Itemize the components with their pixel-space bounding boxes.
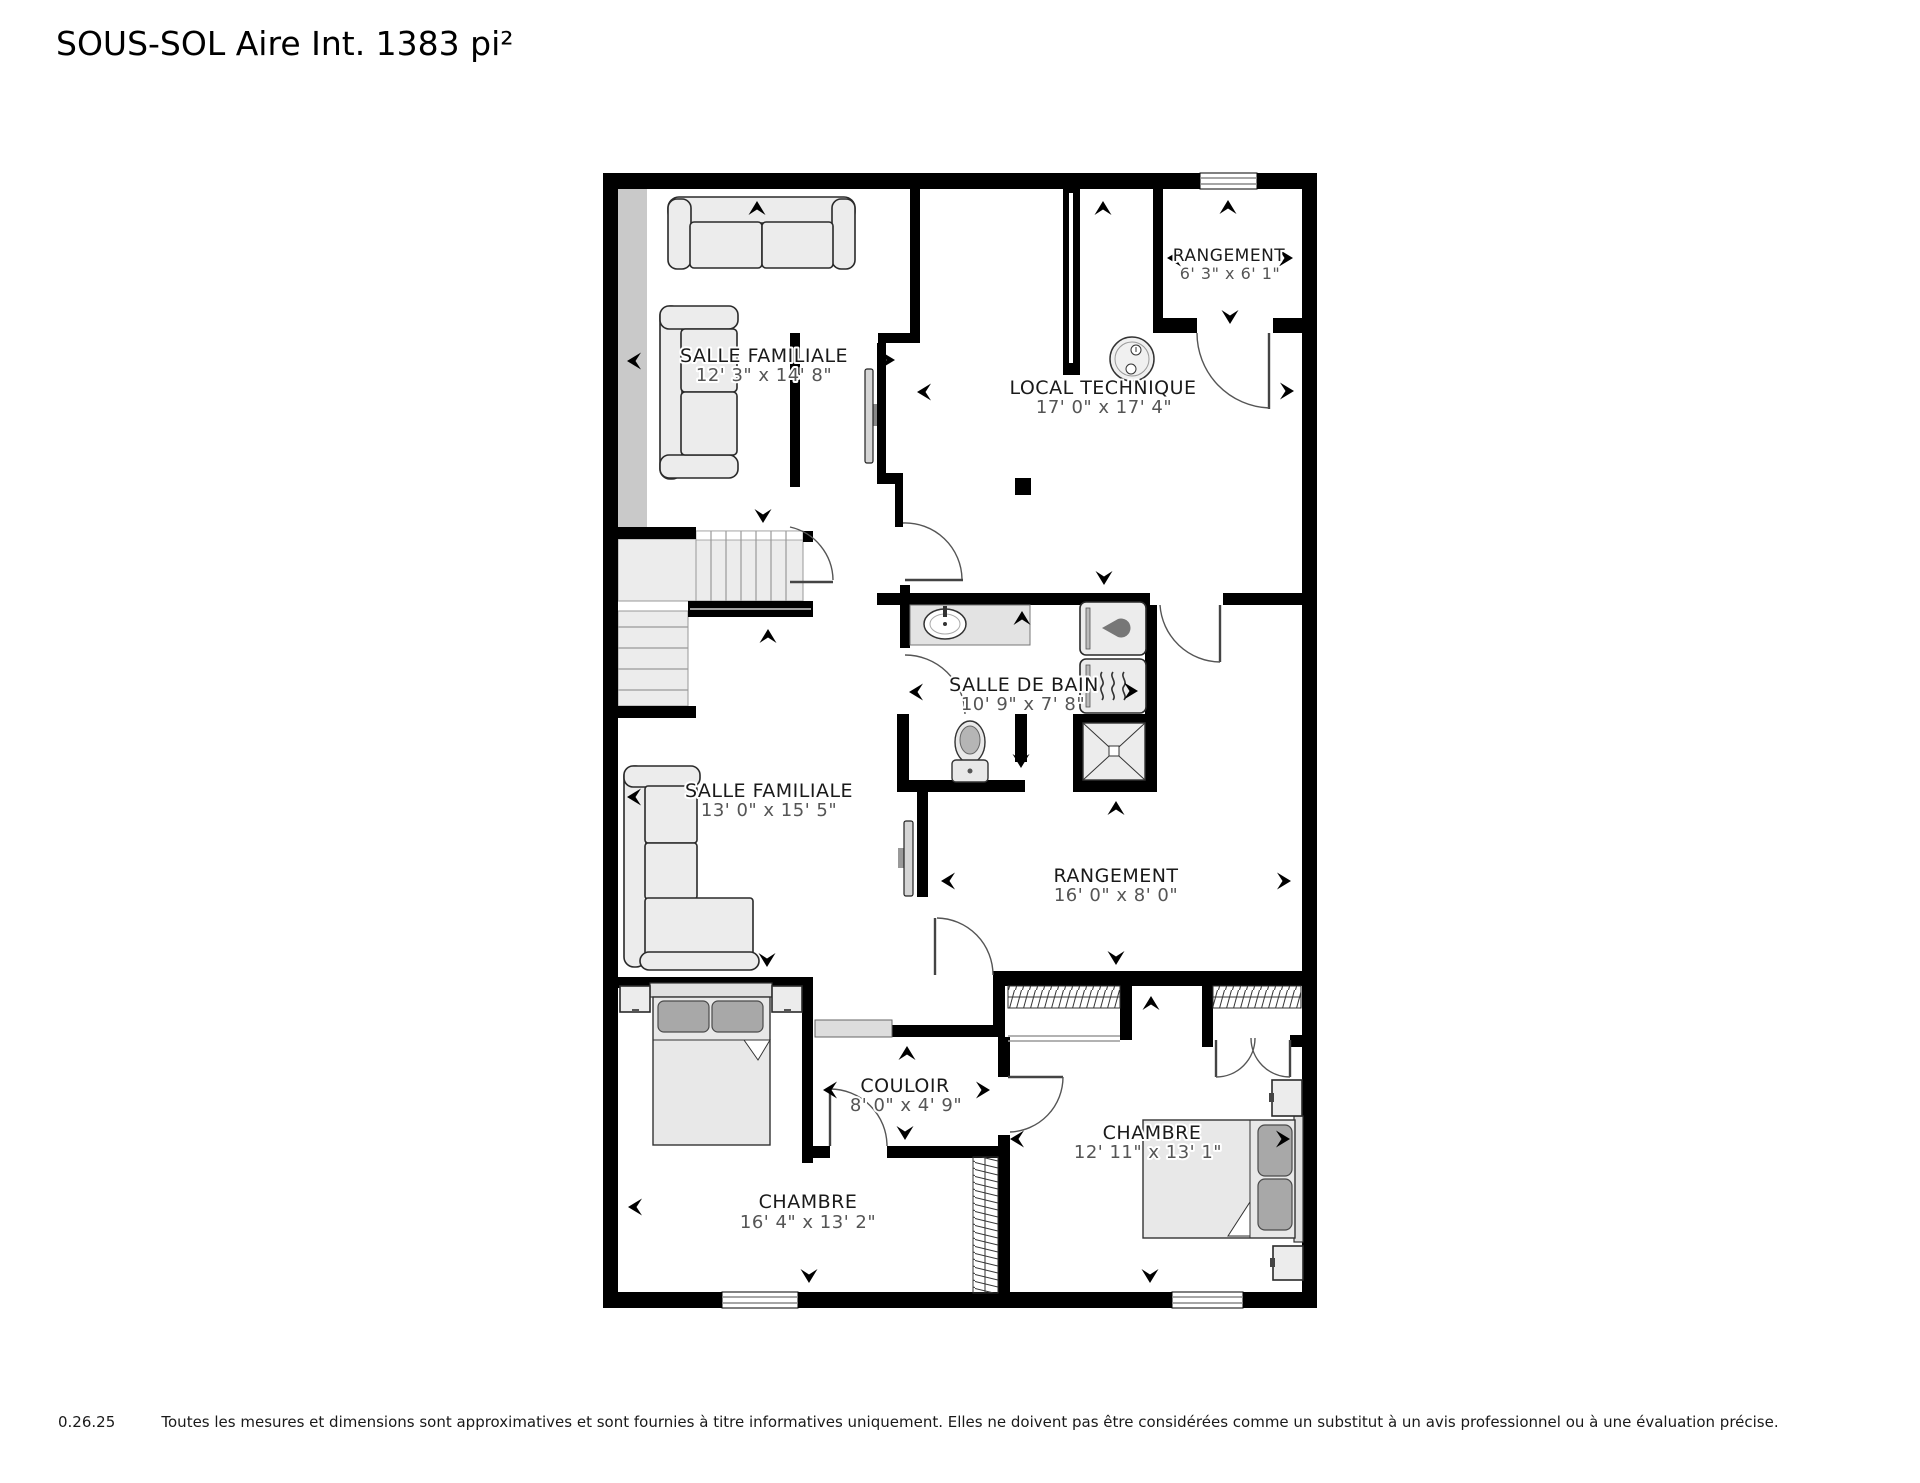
wall-segment — [998, 1135, 1010, 1293]
wall-segment — [1153, 318, 1197, 333]
dim-arrow-down-icon — [759, 953, 776, 967]
wall-segment — [1120, 985, 1132, 1040]
dim-arrow-down-icon — [897, 1126, 914, 1140]
room-label-salle-familiale-bas: SALLE FAMILIALE — [685, 780, 853, 802]
wall-segment — [877, 473, 903, 484]
room-label-rangement-petit: RANGEMENT — [1173, 246, 1286, 266]
stair-upper-flight — [696, 531, 803, 601]
wall-segment — [1073, 714, 1157, 723]
wall-seam — [1069, 193, 1073, 363]
version-number: 0.26.25 — [58, 1413, 115, 1431]
wall-segment — [998, 1037, 1010, 1077]
closet-rod-hatch-icon — [973, 1157, 998, 1293]
bed — [650, 983, 772, 1145]
dim-arrow-down-icon — [755, 509, 772, 523]
page-title: SOUS-SOL Aire Int. 1383 pi² — [56, 24, 514, 63]
wall-segment — [603, 173, 618, 1308]
stair-lower-flight — [618, 611, 688, 706]
dim-arrow-up-icon — [1220, 200, 1237, 214]
footer-disclaimer: Toutes les mesures et dimensions sont ap… — [160, 1413, 1778, 1431]
wall-segment — [603, 706, 696, 718]
dim-arrow-up-icon — [1108, 801, 1125, 815]
dim-arrow-right-icon — [1280, 383, 1294, 400]
door-swing-icon — [1160, 605, 1220, 662]
wall-segment — [1223, 593, 1302, 605]
room-dims-salle-familiale-haut: 12' 3" x 14' 8" — [696, 365, 832, 386]
sink-icon — [910, 605, 1030, 645]
wall-segment — [1015, 714, 1027, 762]
dim-arrow-left-icon — [1010, 1131, 1024, 1148]
door-swing-icon — [903, 523, 963, 580]
stair-landing — [618, 539, 696, 601]
tv-icon — [865, 369, 877, 463]
dim-arrow-down-icon — [1222, 310, 1239, 324]
wall-segment — [1153, 189, 1163, 323]
dresser — [1269, 1080, 1302, 1116]
room-label-chambre-gauche: CHAMBRE — [759, 1191, 858, 1213]
closet-double-door-icon — [1216, 1038, 1290, 1077]
dim-arrow-right-icon — [1277, 873, 1291, 890]
shower-icon — [1083, 723, 1145, 780]
room-dims-chambre-gauche: 16' 4" x 13' 2" — [740, 1212, 876, 1233]
dim-arrow-left-icon — [628, 1199, 642, 1216]
room-dims-salle-familiale-bas: 13' 0" x 15' 5" — [701, 800, 837, 821]
wall-segment — [1302, 173, 1317, 1308]
window-icon — [1172, 1292, 1243, 1308]
wall-segment — [1290, 1035, 1302, 1047]
door-swing-icon — [1197, 333, 1269, 409]
closet-rod-hatch-icon — [1213, 986, 1301, 1008]
wall-segment — [900, 585, 910, 648]
room-label-couloir: COULOIR — [860, 1075, 949, 1097]
toilet-icon — [952, 721, 988, 782]
room-label-salle-familiale-haut: SALLE FAMILIALE — [680, 345, 848, 367]
room-dims-couloir: 8' 0" x 4' 9" — [850, 1095, 962, 1116]
sofa — [660, 306, 738, 479]
dim-arrow-down-icon — [801, 1269, 818, 1283]
water-heater-icon — [1110, 337, 1154, 381]
room-dims-salle-de-bain: 10' 9" x 7' 8" — [961, 694, 1085, 715]
room-dims-chambre-droite: 12' 11" x 13' 1" — [1074, 1142, 1222, 1163]
dim-arrow-up-icon — [899, 1046, 916, 1060]
floorplan-page: SOUS-SOL Aire Int. 1383 pi² — [0, 0, 1920, 1483]
room-label-local-technique: LOCAL TECHNIQUE — [1009, 377, 1196, 399]
floorplan-canvas: SOUS-SOL Aire Int. 1383 pi² — [0, 0, 1920, 1483]
room-dims-local-technique: 17' 0" x 17' 4" — [1036, 397, 1172, 418]
wall-segment — [1145, 605, 1157, 792]
wall-segment — [603, 527, 696, 539]
room-dims-rangement-petit: 6' 3" x 6' 1" — [1180, 264, 1281, 283]
wall-segment — [887, 1146, 998, 1158]
nightstand — [620, 986, 650, 1013]
dim-arrow-left-icon — [941, 873, 955, 890]
wall-segment — [813, 1146, 830, 1158]
furnace-icon — [1015, 478, 1031, 495]
room-label-chambre-droite: CHAMBRE — [1103, 1122, 1202, 1144]
dim-arrow-right-icon — [976, 1082, 990, 1099]
cased-opening — [815, 1020, 892, 1037]
dim-arrow-up-icon — [1143, 996, 1160, 1010]
dim-arrow-down-icon — [1108, 951, 1125, 965]
dim-arrow-down-icon — [1096, 571, 1113, 585]
wall-segment — [802, 977, 813, 1163]
wall-segment — [993, 971, 1302, 986]
dresser — [1270, 1246, 1303, 1280]
wall-segment — [917, 790, 928, 897]
washer-icon — [1080, 602, 1146, 655]
wall-segment — [1073, 780, 1157, 792]
room-dims-rangement-grand: 16' 0" x 8' 0" — [1054, 885, 1178, 906]
wall-segment — [1273, 318, 1302, 333]
dim-arrow-left-icon — [917, 384, 931, 401]
door-swing-icon — [935, 918, 993, 975]
wall-segment — [895, 484, 903, 527]
nightstand — [772, 986, 802, 1013]
closet-rod-hatch-icon — [1008, 986, 1120, 1041]
wall-segment — [1202, 985, 1213, 1047]
room-label-rangement-grand: RANGEMENT — [1053, 865, 1178, 887]
wall-segment — [892, 1025, 1005, 1037]
window-icon — [722, 1292, 798, 1308]
room-label-salle-de-bain: SALLE DE BAIN — [949, 674, 1099, 696]
dim-arrow-left-icon — [909, 684, 923, 701]
wall-segment — [878, 333, 920, 343]
door-swing-icon — [1008, 1077, 1063, 1132]
dim-arrow-down-icon — [1142, 1269, 1159, 1283]
loveseat-sofa — [668, 197, 855, 269]
stair-top-step — [696, 531, 803, 540]
dim-arrow-up-icon — [1095, 201, 1112, 215]
wall-segment — [910, 189, 920, 333]
dim-arrow-up-icon — [760, 629, 777, 643]
tv-icon — [898, 821, 913, 896]
window-icon — [1200, 173, 1257, 189]
